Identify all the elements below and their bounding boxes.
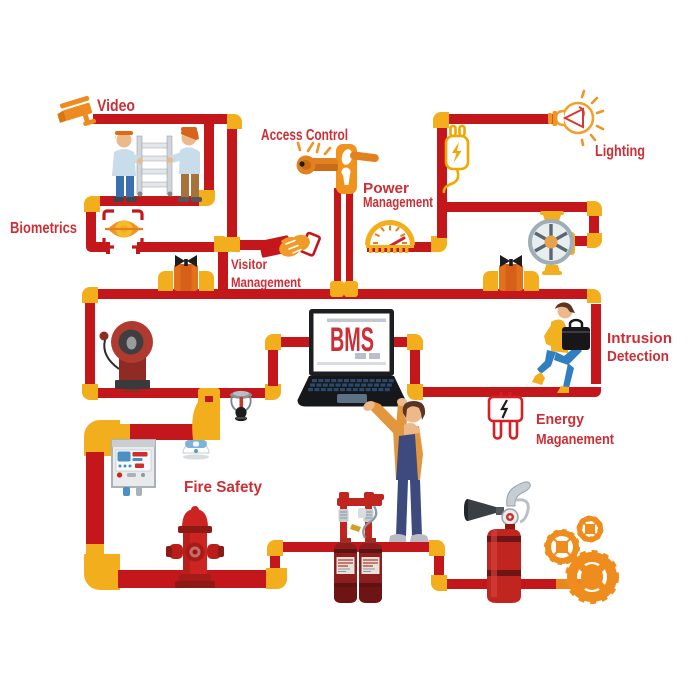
svg-text:Maganement: Maganement [536,431,614,448]
svg-text:Lighting: Lighting [595,143,645,160]
svg-text:Access Control: Access Control [261,127,348,144]
svg-text:Detection: Detection [607,348,669,365]
svg-text:Energy: Energy [536,411,585,428]
svg-text:Fire Safety: Fire Safety [184,479,262,496]
svg-text:BMS: BMS [330,321,374,359]
svg-text:Visitor: Visitor [231,256,267,272]
svg-text:Management: Management [231,274,301,290]
svg-text:Biometrics: Biometrics [10,220,77,237]
svg-text:Intrusion: Intrusion [607,330,672,347]
svg-text:Video: Video [97,96,135,115]
svg-text:Management: Management [363,194,433,211]
